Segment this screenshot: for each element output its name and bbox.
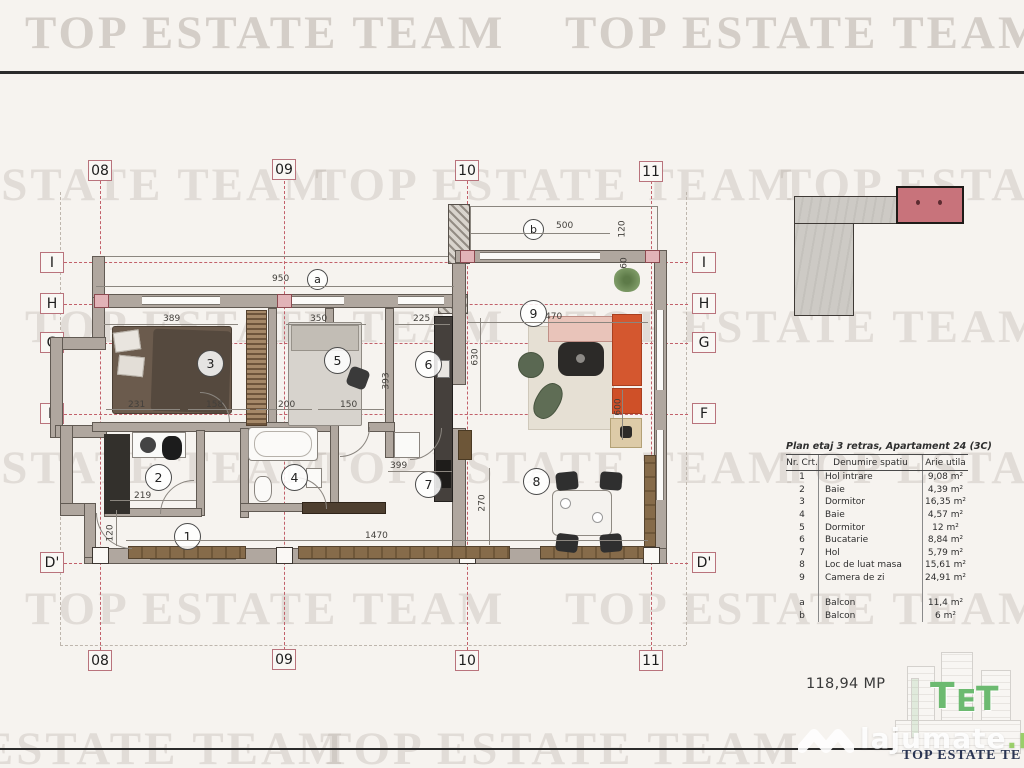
row-name: Bucatarie xyxy=(818,534,922,547)
window xyxy=(480,252,600,260)
listing-floorplan-image: TOP ESTATE TEAM TOP ESTATE TEAM TOP ESTA… xyxy=(0,0,1024,768)
dim-label: 350 xyxy=(310,314,327,324)
plan-boundary xyxy=(60,645,686,646)
toilet xyxy=(162,436,182,460)
grid-label-bottom-09: 09 xyxy=(272,649,296,670)
dining-chair xyxy=(599,533,622,553)
row-name: Dormitor xyxy=(818,496,922,509)
pillow xyxy=(291,325,359,351)
wall-segment xyxy=(92,256,105,298)
column xyxy=(92,547,109,564)
row-area: 9,08 m² xyxy=(922,471,968,484)
row-name: Hol xyxy=(818,547,922,560)
table-title: Plan etaj 3 retras, Apartament 24 (3C) xyxy=(786,441,968,455)
areas-table: Plan etaj 3 retras, Apartament 24 (3C) N… xyxy=(786,441,968,622)
row-name: Loc de luat masa xyxy=(818,559,922,572)
dim-line xyxy=(286,324,366,325)
dim-line xyxy=(388,471,452,472)
dim-line xyxy=(468,322,648,323)
window xyxy=(656,310,664,390)
grid-label-left-H: H xyxy=(40,293,64,314)
dim-label: 158 xyxy=(206,400,223,410)
plant xyxy=(614,268,640,292)
grid-label-bottom-08: 08 xyxy=(88,650,112,671)
dim-line xyxy=(96,286,454,287)
column xyxy=(645,250,660,263)
row-nr: b xyxy=(786,611,818,621)
grid-line-09 xyxy=(284,181,285,650)
table-row: 1 Hol intrare 9,08 m² xyxy=(786,471,968,484)
grid-label-top-08: 08 xyxy=(88,160,112,181)
pillow xyxy=(117,355,145,378)
room-circle-1: 1 xyxy=(174,523,201,550)
wall-segment xyxy=(50,337,63,438)
terrace-deck xyxy=(298,546,510,559)
dining-chair xyxy=(555,533,579,554)
dim-label: 60 xyxy=(620,257,630,268)
dim-label: 389 xyxy=(163,314,180,324)
wall-segment xyxy=(330,425,339,513)
row-name: Baie xyxy=(818,509,922,522)
col-header-nr: Nr. Crt. xyxy=(786,458,818,468)
dim-label: 200 xyxy=(278,400,295,410)
room-circle-4: 4 xyxy=(281,464,308,491)
dim-line xyxy=(116,510,117,546)
row-area: 4,39 m² xyxy=(922,484,968,497)
dim-label: 231 xyxy=(128,400,145,410)
row-area: 4,57 m² xyxy=(922,509,968,522)
table-header-row: Nr. Crt. Denumire spatiu Arie utila xyxy=(786,455,968,471)
col-header-name: Denumire spatiu xyxy=(818,455,922,470)
lajumate-logo-icon xyxy=(798,724,854,760)
grid-label-left-I: I xyxy=(40,252,64,273)
wall-segment xyxy=(452,263,466,385)
table-row: 3 Dormitor 16,35 m² xyxy=(786,496,968,509)
column xyxy=(643,547,660,564)
room-circle-2: 2 xyxy=(145,464,172,491)
row-name: Balcon xyxy=(818,610,922,623)
door-arc xyxy=(340,427,370,457)
bathroom-cabinet xyxy=(104,434,130,514)
dim-line xyxy=(395,324,450,325)
row-area: 5,79 m² xyxy=(922,547,968,560)
dim-label: 150 xyxy=(340,400,357,410)
plate xyxy=(592,512,603,523)
table-row: 7 Hol 5,79 m² xyxy=(786,547,968,560)
dim-label: 500 xyxy=(556,221,573,231)
plan-boundary xyxy=(686,192,687,645)
keyplan-body xyxy=(794,196,898,224)
row-area: 24,91 m² xyxy=(922,572,968,585)
pouf xyxy=(518,352,544,378)
grid-label-right-F: F xyxy=(692,403,716,424)
column xyxy=(276,547,293,564)
col-header-area: Arie utila xyxy=(922,455,968,470)
sofa xyxy=(612,314,642,386)
column xyxy=(94,294,109,308)
grid-label-right-G: G xyxy=(692,332,716,353)
logo-letter-e: E xyxy=(956,684,977,719)
dim-label: 600 xyxy=(614,398,624,415)
column xyxy=(460,250,475,263)
dim-label: 1470 xyxy=(365,531,388,541)
table-row: 9 Camera de zi 24,91 m² xyxy=(786,572,968,585)
room-circle-7: 7 xyxy=(415,471,442,498)
table-row: 2 Baie 4,39 m² xyxy=(786,484,968,497)
grid-label-top-09: 09 xyxy=(272,159,296,180)
site-name: lajumate xyxy=(860,722,1006,755)
row-name: Balcon xyxy=(818,597,922,610)
decor-item xyxy=(576,354,585,363)
dim-label: 393 xyxy=(382,372,392,389)
grid-label-bottom-10: 10 xyxy=(455,650,479,671)
grid-label-top-11: 11 xyxy=(639,161,663,182)
room-circle-8: 8 xyxy=(523,468,550,495)
room-circle-6: 6 xyxy=(415,351,442,378)
total-area-label: 118,94 MP xyxy=(806,676,885,692)
dim-label: 120 xyxy=(618,220,628,237)
row-nr: 9 xyxy=(786,573,818,583)
grid-label-right-H: H xyxy=(692,293,716,314)
column xyxy=(277,294,292,308)
terrace-deck xyxy=(644,455,656,547)
row-nr: 3 xyxy=(786,497,818,507)
window xyxy=(290,296,344,305)
row-area: 16,35 m² xyxy=(922,496,968,509)
row-area: 6 m² xyxy=(922,610,968,623)
row-nr: 4 xyxy=(786,510,818,520)
grid-line-08 xyxy=(100,181,101,650)
table-row: b Balcon 6 m² xyxy=(786,610,968,623)
row-nr: 6 xyxy=(786,535,818,545)
dim-line xyxy=(110,500,196,501)
balcony-circle-b: b xyxy=(523,219,544,240)
site-watermark-text: lajumate.ro xyxy=(860,722,1024,755)
bathtub-inner xyxy=(254,431,312,457)
plate xyxy=(560,498,571,509)
dim-label: 225 xyxy=(413,314,430,324)
wall-segment xyxy=(368,422,395,432)
pillow xyxy=(113,329,142,352)
row-name: Baie xyxy=(818,484,922,497)
site-watermark: lajumate.ro xyxy=(798,722,1024,762)
grid-label-bottom-11: 11 xyxy=(639,650,663,671)
grid-label-top-10: 10 xyxy=(455,160,479,181)
site-tld: .ro xyxy=(1006,722,1024,755)
dim-label: 219 xyxy=(134,491,151,501)
row-nr: 5 xyxy=(786,523,818,533)
dim-line xyxy=(104,324,238,325)
dim-label: 270 xyxy=(478,494,488,511)
dim-label: 399 xyxy=(390,461,407,471)
keyplan-unit-highlight xyxy=(896,186,964,224)
table-row: 5 Dormitor 12 m² xyxy=(786,521,968,534)
window xyxy=(656,430,664,500)
table-row: 4 Baie 4,57 m² xyxy=(786,509,968,522)
row-name: Dormitor xyxy=(818,521,922,534)
dining-chair xyxy=(555,471,579,491)
sink xyxy=(140,437,156,453)
logo-letter-t1: T xyxy=(930,676,955,717)
row-nr: a xyxy=(786,598,818,608)
toilet xyxy=(254,476,272,502)
table-spacer-row xyxy=(786,584,968,597)
dim-label: 470 xyxy=(545,312,562,322)
grid-label-left-D: D' xyxy=(40,552,64,573)
row-nr: 1 xyxy=(786,472,818,482)
floor-plan: 08 09 10 11 08 09 10 11 I H G F D' I H G… xyxy=(0,0,1024,768)
logo-letter-t2: T xyxy=(976,679,999,718)
room-circle-5: 5 xyxy=(324,347,351,374)
row-name: Camera de zi xyxy=(818,572,922,585)
row-area: 8,84 m² xyxy=(922,534,968,547)
dim-line xyxy=(470,233,610,234)
row-nr: 8 xyxy=(786,560,818,570)
table-row: 6 Bucatarie 8,84 m² xyxy=(786,534,968,547)
table-row: a Balcon 11,4 m² xyxy=(786,597,968,610)
dim-label: 120 xyxy=(106,524,116,541)
row-nr: 2 xyxy=(786,485,818,495)
dim-label: 950 xyxy=(272,274,289,284)
dim-line xyxy=(489,468,490,545)
grid-label-right-D: D' xyxy=(692,552,716,573)
row-area: 11,4 m² xyxy=(922,597,968,610)
grid-label-right-I: I xyxy=(692,252,716,273)
row-area: 12 m² xyxy=(922,521,968,534)
wall-segment xyxy=(196,430,205,516)
dining-table xyxy=(552,490,612,536)
room-circle-3: 3 xyxy=(197,350,224,377)
row-name: Hol intrare xyxy=(818,471,922,484)
keyplan-dot xyxy=(938,200,942,205)
window xyxy=(142,296,220,305)
kitchen-cabinet xyxy=(458,430,472,460)
row-nr: 7 xyxy=(786,548,818,558)
window xyxy=(398,296,444,305)
table-row: 8 Loc de luat masa 15,61 m² xyxy=(786,559,968,572)
keyplan-dot xyxy=(916,200,920,205)
row-area: 15,61 m² xyxy=(922,559,968,572)
dim-label: 630 xyxy=(471,348,481,365)
dining-chair xyxy=(599,471,622,490)
